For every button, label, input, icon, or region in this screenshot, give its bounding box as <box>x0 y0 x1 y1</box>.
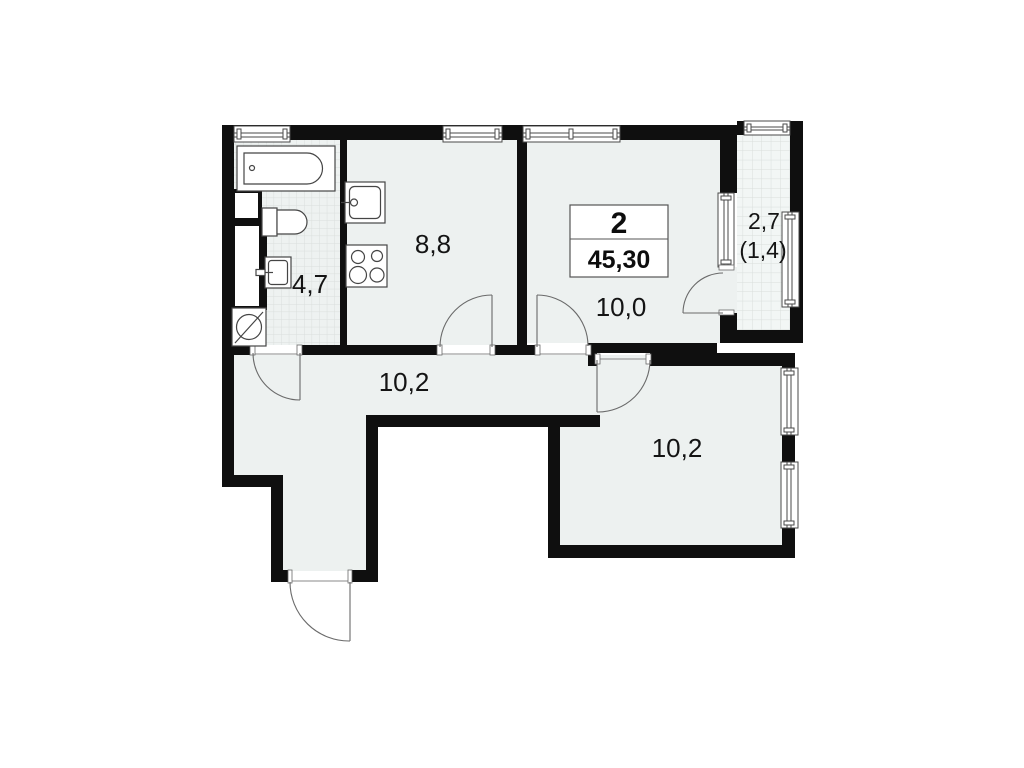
service-shafts <box>231 189 267 310</box>
total-area-value: 45,30 <box>588 246 651 274</box>
balcony-area-label: 2,7 <box>748 208 780 234</box>
floor-plan: 2 45,30 4,7 8,8 10,0 10,2 10,2 2,7 (1,4) <box>0 0 1024 768</box>
window-bathroom <box>234 126 290 142</box>
balcony-doorway-floor <box>720 267 737 313</box>
stove <box>346 245 387 287</box>
window-living-to-balcony <box>718 193 734 267</box>
window-balcony-top <box>744 121 790 135</box>
balcony-reduced-area-label: (1,4) <box>739 237 786 263</box>
door-entrance <box>288 570 352 641</box>
window-kitchen <box>443 126 502 142</box>
bedroom-area-label: 10,2 <box>652 433 703 463</box>
floor-plan-svg: 2 45,30 4,7 8,8 10,0 10,2 10,2 2,7 (1,4) <box>0 0 1024 768</box>
kitchen-sink <box>341 182 385 223</box>
window-bedroom-lower <box>781 462 798 528</box>
hallway-area-label: 10,2 <box>379 367 430 397</box>
window-living-room <box>523 126 620 142</box>
washing-machine-icon <box>232 308 266 346</box>
window-bedroom-upper <box>781 368 798 435</box>
living-room-area-label: 10,0 <box>596 292 647 322</box>
bathtub <box>237 146 335 191</box>
kitchen-area-label: 8,8 <box>415 229 451 259</box>
toilet <box>262 208 307 236</box>
stat-box: 2 45,30 <box>570 205 668 277</box>
rooms-count-value: 2 <box>611 207 628 240</box>
bathroom-area-label: 4,7 <box>292 269 328 299</box>
